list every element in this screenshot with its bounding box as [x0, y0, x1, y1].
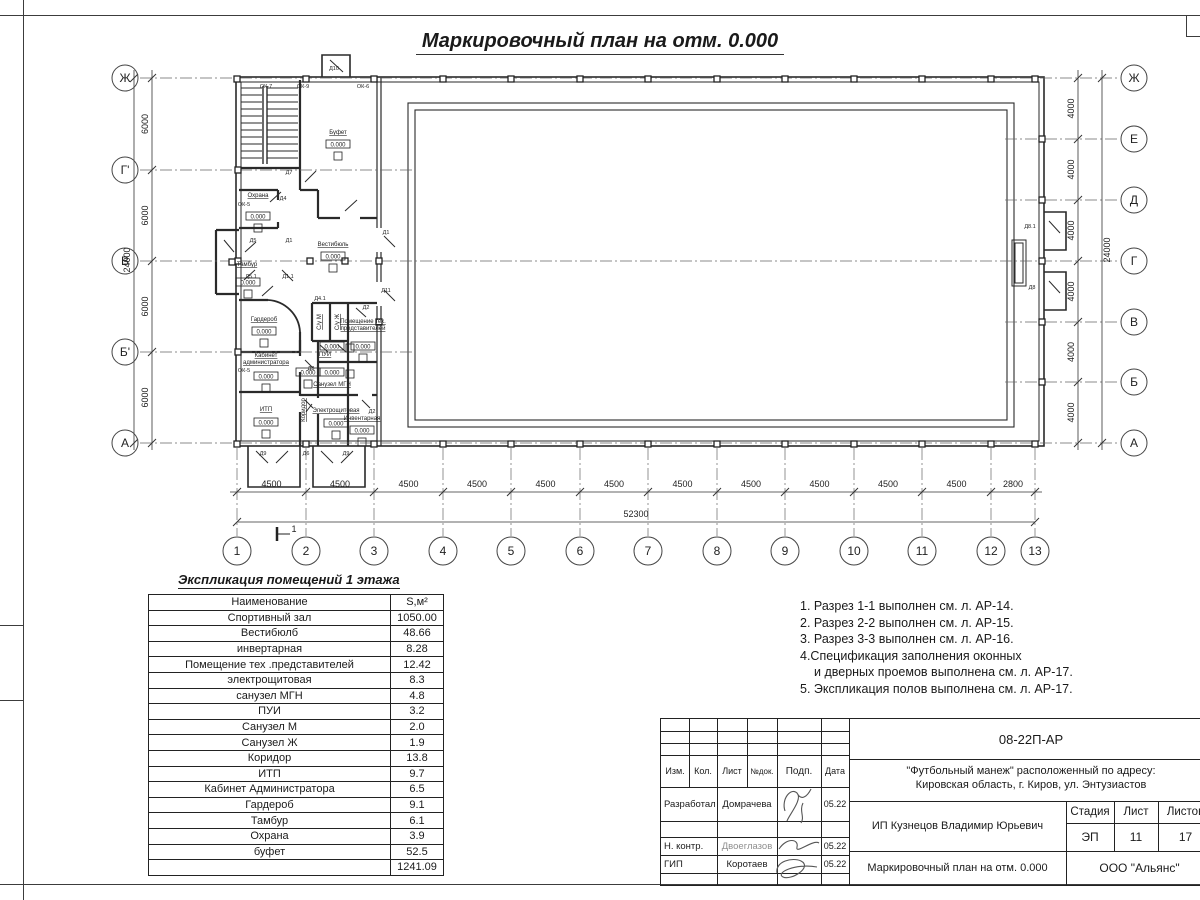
dim-total: 24000	[1102, 237, 1112, 262]
opening-tag: Д8	[1029, 285, 1036, 291]
note-line: и дверных проемов выполнена см. л. АР-17…	[800, 664, 1073, 681]
room-label: Помещение тех.	[340, 319, 386, 325]
dim-label: 4000	[1066, 342, 1076, 362]
table-row: Охрана3.9	[149, 828, 444, 844]
tb-date: 05.22	[821, 837, 849, 855]
drawing-sheet: { "sheet": { "title": "Маркировочный пла…	[0, 0, 1200, 900]
dim-label: 6000	[140, 205, 150, 225]
axis-label: 1	[234, 544, 241, 558]
tb-project-line2: Кировская область, г. Киров, ул. Энтузиа…	[849, 777, 1200, 793]
room-number-badge	[329, 264, 337, 272]
elevation-label: 0.000	[240, 281, 256, 287]
opening-tag: Д4.1	[314, 296, 325, 302]
tb-name: Коротаев	[717, 855, 777, 873]
elevation-label: 0.000	[328, 422, 344, 428]
room-label: ИТП	[260, 407, 272, 413]
opening-tag: Д4	[280, 196, 287, 202]
opening-tag: ОК-9	[297, 84, 309, 90]
dim-label: 4500	[672, 479, 692, 489]
axis-label: А	[1130, 436, 1138, 450]
elevation-label: 0.000	[355, 345, 371, 351]
dim-label: 4000	[1066, 159, 1076, 179]
opening-tag: ОК-7	[260, 84, 272, 90]
opening-tag: Д2	[369, 409, 376, 415]
elevation-label: 0.000	[258, 375, 274, 381]
opening-tag: Д11	[381, 288, 390, 294]
elevation-label: 0.000	[256, 330, 272, 336]
tb-name: Домрачева	[717, 787, 777, 821]
elevation-label: 0.000	[324, 345, 340, 351]
tb-kol: Кол.	[689, 755, 717, 787]
axis-label: 2	[303, 544, 310, 558]
dim-label: 4500	[946, 479, 966, 489]
note-line: 5. Экспликация полов выполнена см. л. АР…	[800, 681, 1073, 698]
room-number-badge	[304, 380, 312, 388]
dim-label: 4000	[1066, 402, 1076, 422]
tb-sheet-title: Маркировочный план на отм. 0.000	[849, 851, 1066, 885]
section-mark-label: 1	[291, 524, 296, 534]
elevation-label: 0.000	[250, 215, 266, 221]
axis-label: Б'	[120, 345, 130, 359]
table-row: Гардероб9.1	[149, 797, 444, 813]
tb-stage-h: Стадия	[1066, 801, 1114, 823]
dim-label: 4500	[741, 479, 761, 489]
elevation-label: 0.000	[324, 371, 340, 377]
signature	[777, 781, 821, 825]
note-line: 2. Разрез 2-2 выполнен см. л. АР-15.	[800, 615, 1073, 632]
room-label: Охрана	[248, 193, 270, 199]
opening-tag: Д3	[308, 366, 315, 372]
axis-label: 6	[577, 544, 584, 558]
floor-plan: 6000600060006000240004000400040004000400…	[0, 0, 1200, 577]
tb-listov-v: 17	[1158, 823, 1200, 851]
room-number-badge	[244, 290, 252, 298]
table-row: ИТП9.7	[149, 766, 444, 782]
tb-data: Дата	[821, 755, 849, 787]
axis-label: 10	[847, 544, 861, 558]
room-number-badge	[260, 339, 268, 347]
tb-client: ИП Кузнецов Владимир Юрьевич	[849, 801, 1066, 851]
opening-tag: ОК-5	[238, 368, 250, 374]
room-label: С/у М	[317, 314, 323, 330]
opening-tag: Д1	[286, 238, 293, 244]
table-row: санузел МГН4.8	[149, 688, 444, 704]
dim-label: 2800	[1003, 479, 1023, 489]
opening-tag: Д1	[383, 230, 390, 236]
tb-list-v: 11	[1114, 823, 1158, 851]
room-label: Электрощитовая	[312, 408, 359, 414]
axis-label: Е	[1130, 132, 1138, 146]
opening-tag: Д5.1	[245, 274, 256, 280]
room-label: Кабинет	[255, 353, 278, 359]
elevation-label: 0.000	[354, 429, 370, 435]
tb-listov-h: Листов	[1158, 801, 1200, 823]
signature	[773, 833, 825, 885]
tb-date: 05.22	[821, 787, 849, 821]
table-row: 1241.09	[149, 860, 444, 876]
tb-ndok: №док.	[747, 755, 777, 787]
axis-label: 13	[1028, 544, 1042, 558]
tb-role: Н. контр.	[661, 837, 720, 855]
room-number-badge	[332, 431, 340, 439]
axis-label: Г	[1131, 254, 1138, 268]
opening-tag: Д9	[343, 451, 350, 457]
table-row: Санузел М2.0	[149, 719, 444, 735]
tb-role: ГИП	[661, 855, 720, 873]
dim-label: 4500	[467, 479, 487, 489]
axis-label: Ж	[119, 71, 130, 85]
notes: 1. Разрез 1-1 выполнен см. л. АР-14. 2. …	[800, 598, 1073, 697]
tb-date: 05.22	[821, 855, 849, 873]
tb-role: Разработал	[661, 787, 720, 821]
elevation-label: 0.000	[258, 421, 274, 427]
tb-name: Двоеглазов	[717, 837, 777, 855]
axis-label: Д	[1130, 193, 1138, 207]
table-row: Помещение тех .представителей12.42	[149, 657, 444, 673]
dim-label: 4500	[330, 479, 350, 489]
room-number-badge	[334, 152, 342, 160]
axis-label: 3	[371, 544, 378, 558]
table-row: НаименованиеS,м²	[149, 595, 444, 611]
axis-label: 5	[508, 544, 515, 558]
axis-label: В	[121, 254, 129, 268]
table-row: буфет52.5	[149, 844, 444, 860]
room-label: Буфет	[329, 130, 347, 136]
table-row: Санузел Ж1.9	[149, 735, 444, 751]
dim-label: 4000	[1066, 98, 1076, 118]
table-row: электрощитовая8.3	[149, 672, 444, 688]
opening-tag: Д10	[329, 66, 339, 72]
opening-tag: Д7	[286, 170, 293, 176]
note-line: 1. Разрез 1-1 выполнен см. л. АР-14.	[800, 598, 1073, 615]
note-line: 3. Разрез 3-3 выполнен см. л. АР-16.	[800, 631, 1073, 648]
room-label: Гардероб	[251, 317, 278, 323]
dim-label: 4500	[809, 479, 829, 489]
opening-tag: Д6	[303, 451, 310, 457]
dim-label: 4000	[1066, 281, 1076, 301]
tb-list: Лист	[717, 755, 747, 787]
room-label: Вестибюль	[318, 242, 349, 248]
note-line: 4.Спецификация заполнения оконных	[800, 648, 1073, 665]
table-row: Вестибюлб48.66	[149, 626, 444, 642]
axis-label: 9	[782, 544, 789, 558]
opening-tag: ОК-6	[357, 84, 369, 90]
room-label: Коридор	[301, 397, 307, 421]
room-number-badge	[358, 438, 366, 446]
dim-label: 4500	[261, 479, 281, 489]
axis-label: Б	[1130, 375, 1138, 389]
opening-tag: Д2	[363, 305, 370, 311]
tb-izm: Изм.	[661, 755, 689, 787]
room-label: Санузел МГН	[313, 382, 351, 388]
dim-total: 52300	[623, 509, 648, 519]
opening-tag: Д1.1	[282, 274, 293, 280]
dim-label: 4500	[878, 479, 898, 489]
room-label: представителей	[341, 325, 386, 332]
axis-label: 7	[645, 544, 652, 558]
dim-label: 6000	[140, 114, 150, 134]
tb-company: ООО "Альянс"	[1066, 851, 1200, 885]
dim-label: 6000	[140, 296, 150, 316]
room-number-badge	[262, 384, 270, 392]
table-row: инвертарная8.28	[149, 641, 444, 657]
room-label: ПУИ	[319, 352, 331, 358]
axis-label: 8	[714, 544, 721, 558]
axis-label: Ж	[1128, 71, 1139, 85]
dim-label: 4000	[1066, 220, 1076, 240]
opening-tag: ОК-5	[238, 202, 250, 208]
fold-mark	[0, 700, 23, 701]
room-number-badge	[359, 354, 367, 362]
opening-tag: Д5	[250, 238, 257, 244]
table-row: Кабинет Администратора6.5	[149, 782, 444, 798]
tb-list-h: Лист	[1114, 801, 1158, 823]
axis-label: 11	[916, 544, 929, 558]
axis-label: 12	[984, 544, 998, 558]
tb-stage-v: ЭП	[1066, 823, 1114, 851]
room-number-badge	[262, 430, 270, 438]
room-table: НаименованиеS,м²Спортивный зал1050.00Вес…	[148, 594, 444, 876]
room-label: администратора	[243, 360, 290, 366]
table-row: Тамбур6.1	[149, 813, 444, 829]
opening-tag: Д8.1	[1024, 224, 1035, 230]
axis-label: А	[121, 436, 129, 450]
tb-doc-number: 08-22П-АР	[849, 719, 1200, 759]
table-row: ПУИ3.2	[149, 704, 444, 720]
dim-label: 4500	[398, 479, 418, 489]
dim-label: 4500	[535, 479, 555, 489]
opening-tag: Д9	[260, 451, 267, 457]
table-row: Спортивный зал1050.00	[149, 610, 444, 626]
fold-mark	[0, 625, 23, 626]
table-row: Коридор13.8	[149, 750, 444, 766]
axis-label: 4	[440, 544, 447, 558]
axis-label: В	[1130, 315, 1138, 329]
room-label: Инвентарная	[344, 416, 381, 422]
elevation-label: 0.000	[325, 255, 341, 261]
axis-label: Г'	[121, 163, 130, 177]
elevation-label: 0.000	[330, 143, 346, 149]
dim-label: 6000	[140, 387, 150, 407]
title-block: Изм. Кол. Лист №док. Подп. Дата Разработ…	[660, 718, 1200, 886]
dim-label: 4500	[604, 479, 624, 489]
room-table-title: Экспликация помещений 1 этажа	[178, 572, 400, 589]
room-label: Тамбур	[237, 262, 258, 268]
